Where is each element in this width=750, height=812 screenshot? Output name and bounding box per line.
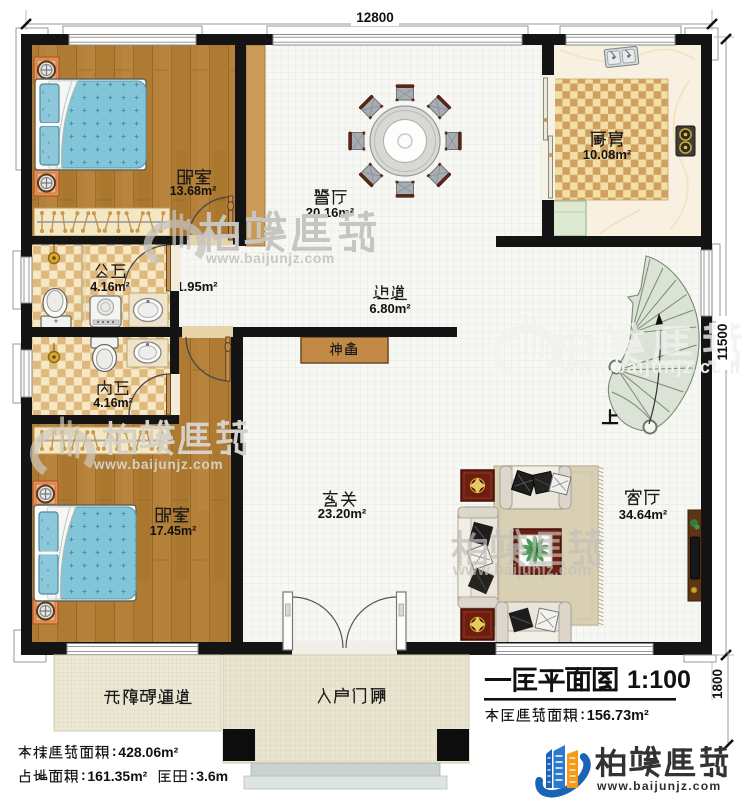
svg-text:12800: 12800 (356, 10, 394, 25)
svg-text:13.68m²: 13.68m² (170, 184, 217, 198)
svg-text:www.baijunjz.com: www.baijunjz.com (93, 457, 223, 472)
svg-text:10.08m²: 10.08m² (583, 147, 632, 162)
svg-text:1.95m²: 1.95m² (176, 279, 218, 294)
svg-text:23.20m²: 23.20m² (318, 506, 367, 521)
svg-text:428.06m²: 428.06m² (118, 744, 178, 760)
svg-text:3.6m: 3.6m (196, 768, 228, 784)
svg-text:www.baijunjz.com: www.baijunjz.com (596, 779, 721, 793)
svg-text:www.baijunjz.com: www.baijunjz.com (452, 562, 592, 579)
svg-text:www.baijunjz.com: www.baijunjz.com (205, 250, 335, 266)
svg-text:4.16m²: 4.16m² (93, 396, 133, 410)
svg-text:6.80m²: 6.80m² (369, 301, 411, 316)
svg-text:34.64m²: 34.64m² (619, 507, 668, 522)
svg-text:161.35m²: 161.35m² (87, 768, 147, 784)
svg-text:1:100: 1:100 (627, 666, 691, 694)
svg-text:11500: 11500 (715, 324, 730, 361)
svg-text:17.45m²: 17.45m² (150, 524, 197, 538)
svg-text:156.73m²: 156.73m² (587, 708, 649, 724)
